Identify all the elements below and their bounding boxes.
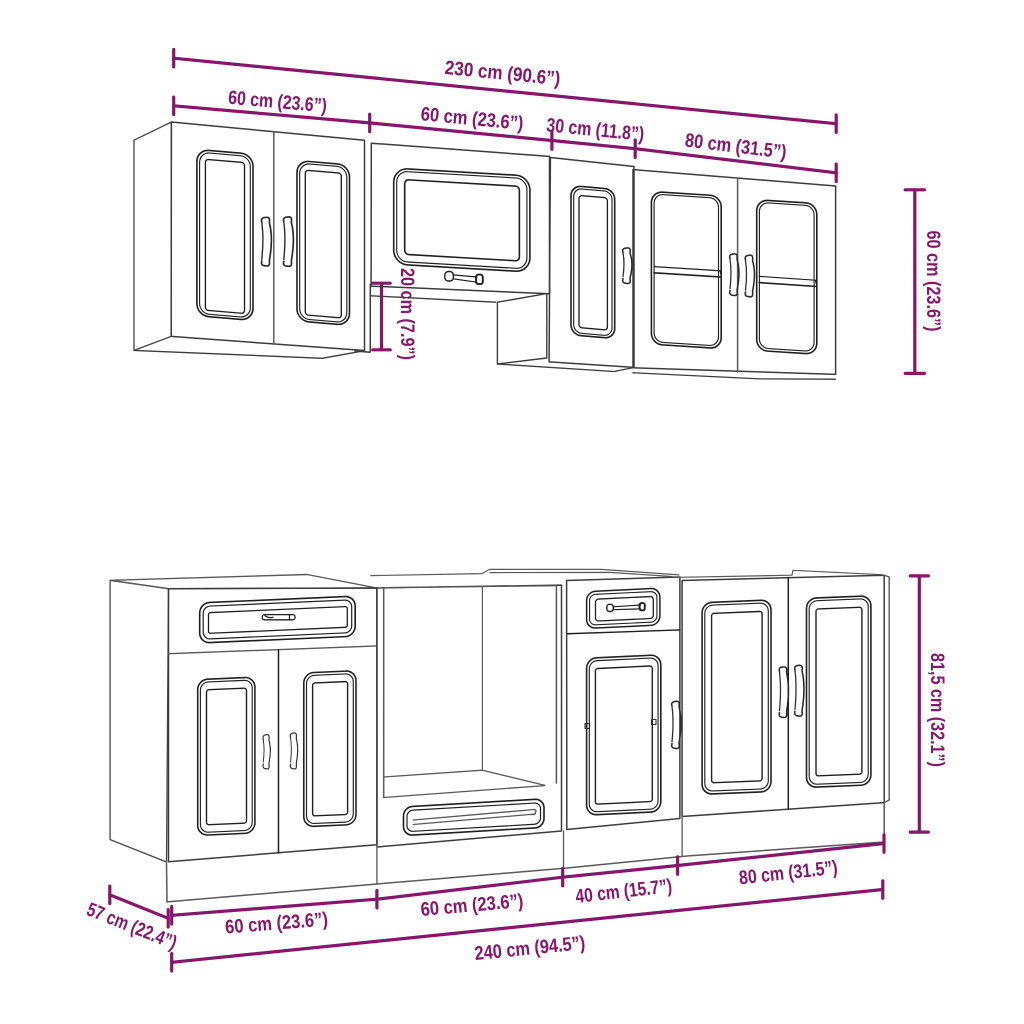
svg-text:240 cm (94.5”): 240 cm (94.5”) [474,932,587,965]
svg-text:60 cm (23.6”): 60 cm (23.6”) [224,908,328,938]
svg-text:57 cm (22.4”): 57 cm (22.4”) [84,899,180,955]
svg-text:80 cm (31.5”): 80 cm (31.5”) [684,129,788,163]
svg-text:60 cm (23.6”): 60 cm (23.6”) [922,231,944,332]
svg-text:80 cm (31.5”): 80 cm (31.5”) [738,857,839,890]
svg-text:81,5 cm (32.1”): 81,5 cm (32.1”) [926,653,948,767]
svg-text:20 cm (7.9”): 20 cm (7.9”) [396,268,418,360]
svg-text:40 cm (15.7”): 40 cm (15.7”) [574,875,673,908]
svg-text:60 cm (23.6”): 60 cm (23.6”) [420,890,525,921]
